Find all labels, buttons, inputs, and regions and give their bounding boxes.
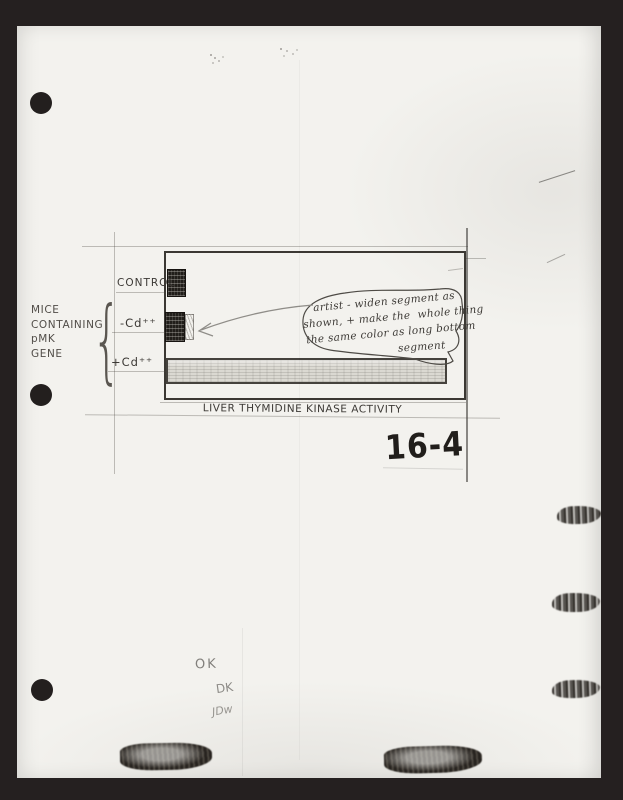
crop-line-top — [82, 246, 468, 247]
punch-hole-top — [30, 92, 52, 114]
group-brace: { — [92, 296, 121, 386]
paper-crease-2 — [299, 60, 300, 760]
arrow-head — [199, 323, 213, 336]
speckle-cluster-2 — [280, 48, 282, 50]
paper-crease-1 — [242, 628, 243, 776]
punch-hole-bottom — [31, 679, 53, 701]
punch-hole-middle — [30, 384, 52, 406]
speckle-cluster-1 — [210, 54, 212, 56]
label-control: CONTROL — [117, 277, 175, 289]
label-minus-cd: -Cd⁺⁺ — [120, 316, 157, 330]
artist-note-arrow — [201, 305, 313, 330]
scanned-page: CONTROL -Cd⁺⁺ +Cd⁺⁺ MICE CONTAINING pMK … — [0, 0, 623, 800]
label-guide-control — [116, 292, 166, 293]
approval-dk: DK — [215, 680, 234, 696]
approval-ok: OK — [195, 657, 218, 673]
bar-minus-cd — [166, 313, 184, 341]
axis-title: LIVER THYMIDINE KINASE ACTIVITY — [160, 402, 445, 416]
figure-number: 16-4 — [384, 425, 465, 468]
tick-mark-right — [466, 258, 486, 259]
